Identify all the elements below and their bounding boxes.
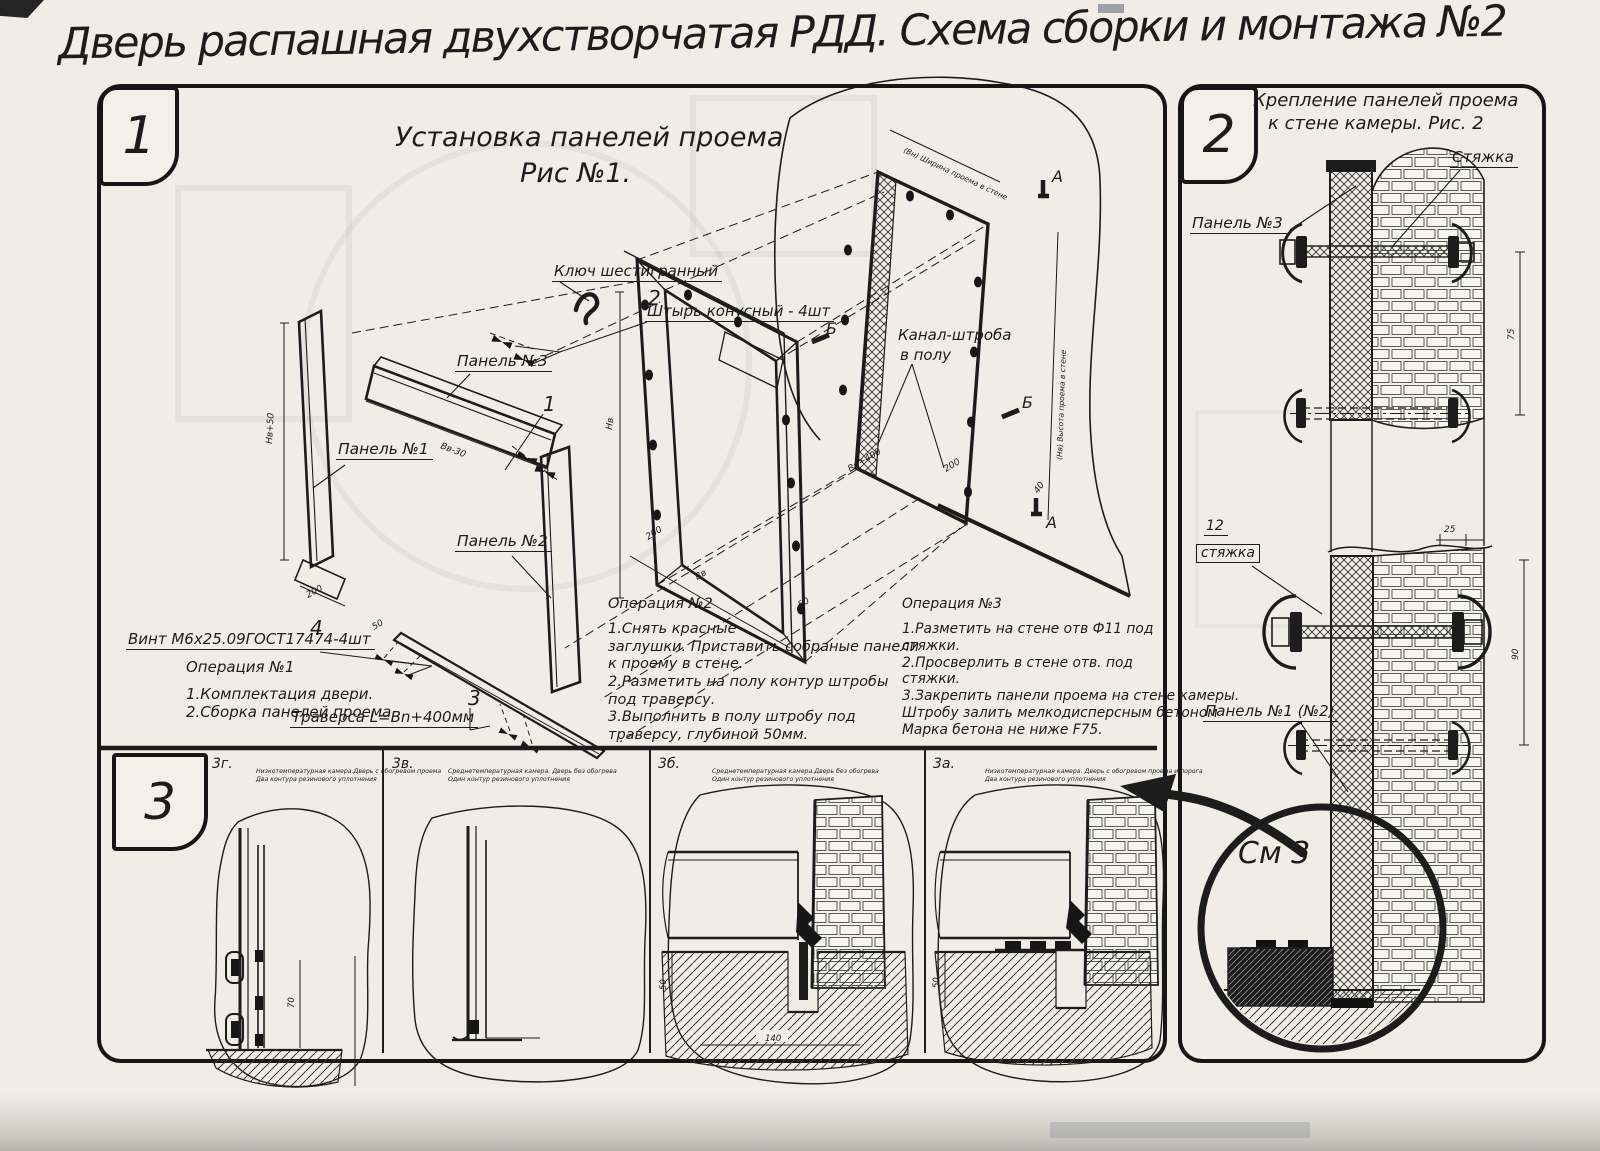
callout-panel2: Панель №2 — [455, 532, 552, 552]
section-3g-drawing — [206, 809, 370, 1087]
figure1-badge: 1 — [99, 86, 179, 186]
operation-2-title: Операция №2 — [608, 596, 919, 612]
figure2-title: Крепление панелей проема — [1253, 90, 1518, 111]
figure1-subtitle: Рис №1. — [520, 158, 631, 189]
caption-line: Один контур резинового уплотнения — [712, 776, 879, 784]
callout-pin: Штырь конусный - 4шт — [645, 302, 834, 322]
paper-edge — [0, 1093, 1600, 1151]
section-3g-id: 3г. — [212, 756, 233, 772]
caption-line: Один контур резинового уплотнения — [448, 776, 617, 784]
section-mark: Б — [1022, 393, 1033, 412]
section-3a-drawing — [935, 785, 1164, 1082]
callout-channel-line1: Канал-штроба — [898, 326, 1011, 344]
callout-panel1: Панель №1 — [336, 440, 433, 460]
dim-text: (Нв) Высота проема в стене — [1055, 349, 1068, 460]
section-3b-drawing — [662, 785, 913, 1084]
dim-text: Вв-30 — [439, 441, 467, 460]
operation-2: Операция №2 1.Снять красные заглушки. Пр… — [608, 596, 919, 745]
operation-3: Операция №3 1.Разметить на стене отв Ф11… — [902, 596, 1239, 739]
caption-line: Два контура резинового уплотнения — [985, 776, 1203, 784]
operation-1-line: 1.Комплектация двери. — [186, 685, 391, 703]
figure3-strip — [101, 748, 1164, 1087]
blueprint-sheet: Дверь распашная двухстворчатая РДД. Схем… — [0, 0, 1600, 1151]
dim-text: Нв — [605, 417, 616, 430]
section-3v-id: 3в. — [392, 756, 414, 772]
operation-3-line: 2.Просверлить в стене отв. под — [902, 655, 1239, 672]
operation-2-line: траверсу, глубиной 50мм. — [608, 727, 919, 745]
opening-jamb-hatch — [858, 172, 896, 476]
dim-text: (Вн) Ширина проема в стене — [902, 146, 1009, 202]
callout-screw: Винт М6х25.09ГОСТ17474-4шт — [126, 630, 375, 650]
callout-tie-position: 12 — [1204, 518, 1228, 536]
operation-1: Операция №1 1.Комплектация двери. 2.Сбор… — [186, 658, 391, 722]
caption-line: Среднетемпературная камера. Дверь без об… — [448, 768, 617, 776]
callout-channel-line2: в полу — [900, 346, 951, 364]
operation-3-title: Операция №3 — [902, 596, 1239, 612]
operation-3-line: Марка бетона не ниже F75. — [902, 722, 1239, 739]
caption-line: Низкотемпературная камера. Дверь с обогр… — [985, 768, 1203, 776]
operation-1-line: 2.Сборка панелей проема — [186, 703, 391, 721]
operation-3-line: 1.Разметить на стене отв Ф11 под — [902, 621, 1239, 638]
dim-text: 40 — [1032, 480, 1047, 495]
operation-1-title: Операция №1 — [186, 658, 391, 676]
figure1-title: Установка панелей проема — [395, 122, 783, 153]
detail-reference-see3: См 3 — [1238, 836, 1310, 871]
figure2-badge: 2 — [1180, 86, 1258, 184]
callout-tie-boxed: стяжка — [1196, 544, 1260, 563]
dim-text: 140 — [765, 1034, 781, 1044]
dim-text: 50 — [932, 977, 942, 988]
section-3v-drawing — [413, 806, 646, 1082]
caption-line: Среднетемпературная камера.Дверь без обо… — [712, 768, 879, 776]
dim-text: 90 — [1511, 648, 1521, 660]
smudge-1 — [1050, 1122, 1310, 1138]
callout-fig2-panel3: Панель №3 — [1190, 214, 1287, 234]
callout-1-number: 1 — [543, 392, 556, 416]
callout-hex-key: Ключ шестигранный — [552, 262, 722, 282]
caption-line: Два контура резинового уплотнения — [256, 776, 441, 784]
technical-drawing: Нв+50 200 Вв-30 50 Нв 200 Вв 50 Вн+400 2… — [0, 0, 1600, 1151]
operation-3-line: 3.Закрепить панели проема на стене камер… — [902, 688, 1239, 705]
operation-2-line: под траверсу. — [608, 692, 919, 710]
operation-2-line: 3.Выполнить в полу штробу под — [608, 709, 919, 727]
figure2-subtitle: к стене камеры. Рис. 2 — [1268, 113, 1484, 134]
section-3b-caption: Среднетемпературная камера.Дверь без обо… — [712, 768, 879, 785]
dim-text: 50 — [659, 979, 669, 990]
callout-3-number: 3 — [468, 686, 481, 710]
screws — [375, 654, 540, 754]
dim-text: 25 — [1444, 525, 1456, 535]
figure3-badge: 3 — [112, 753, 208, 851]
section-3b-id: 3б. — [658, 756, 680, 772]
operation-2-line: заглушки. Приставить собраные панели — [608, 639, 919, 657]
dim-text: 70 — [287, 997, 297, 1008]
operation-2-line: 1.Снять красные — [608, 621, 919, 639]
operation-3-line: стяжки. — [902, 638, 1239, 655]
operation-3-line: Штробу залить мелкодисперсным бетоном — [902, 705, 1239, 722]
hex-key-icon — [576, 294, 597, 323]
dim-text: 200 — [942, 457, 962, 475]
operation-2-line: к проему в стене. — [608, 656, 919, 674]
section-3v-caption: Среднетемпературная камера. Дверь без об… — [448, 768, 617, 785]
section-3a-caption: Низкотемпературная камера. Дверь с обогр… — [985, 768, 1203, 785]
callout-panel1-2: Панель №1 (№2) — [1203, 702, 1338, 722]
section-3a-id: 3а. — [933, 756, 955, 772]
dim-text: Нв+50 — [265, 412, 277, 444]
section-mark: А — [1045, 513, 1057, 532]
section-mark: А — [1051, 167, 1063, 186]
dim-text: 75 — [1507, 328, 1517, 340]
operation-2-line: 2.Разметить на полу контур штробы — [608, 674, 919, 692]
callout-panel3: Панель №3 — [455, 352, 552, 372]
callout-tie: Стяжка — [1450, 148, 1518, 168]
operation-3-line: стяжки. — [902, 671, 1239, 688]
